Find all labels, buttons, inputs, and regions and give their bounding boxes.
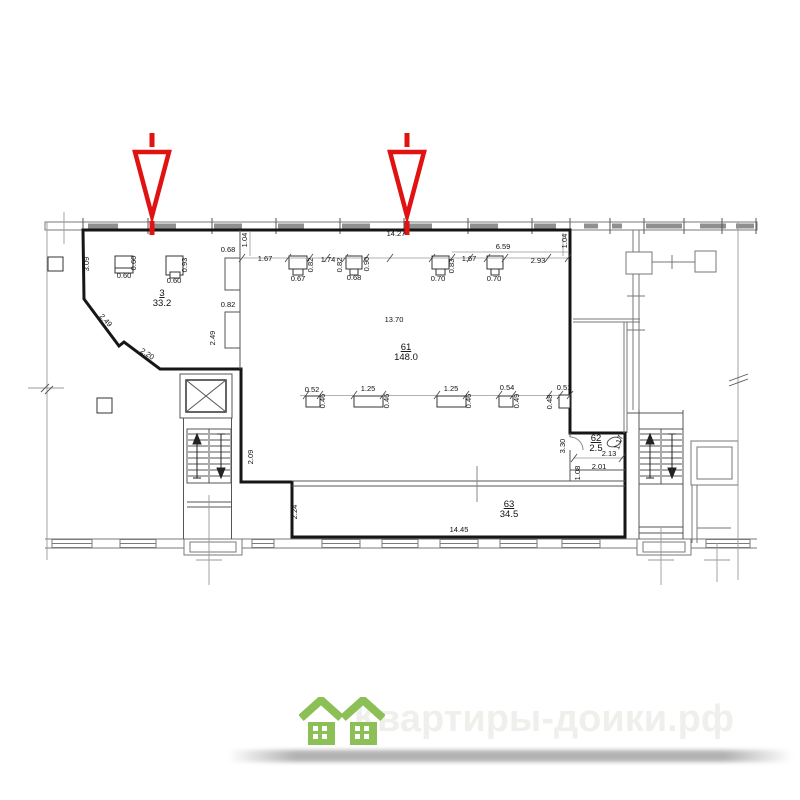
arrow-head bbox=[390, 152, 424, 216]
dimension-label: 0.49 bbox=[512, 394, 521, 409]
dimension-label: 1.74 bbox=[321, 255, 336, 264]
dimension-label: 2.24 bbox=[290, 505, 299, 520]
house-2 bbox=[343, 700, 383, 745]
dimension-label: 0.60 bbox=[167, 276, 182, 285]
dimension-label: 0.46 bbox=[464, 394, 473, 409]
dimension-label: 0.67 bbox=[291, 274, 306, 283]
dimension-label: 1.67 bbox=[258, 254, 273, 263]
dimension-label: 0.83 bbox=[447, 259, 456, 274]
dimension-label: 3.30 bbox=[558, 439, 567, 454]
house-1 bbox=[301, 700, 341, 745]
dimension-label: 1.04 bbox=[240, 233, 249, 248]
dimension-label: 0.82 bbox=[221, 300, 236, 309]
dimension-label: 13.70 bbox=[385, 315, 404, 324]
dimension-labels: 3.090.600.600.930.602.492.200.680.822.49… bbox=[82, 229, 625, 534]
dimension-label: 6.59 bbox=[496, 242, 511, 251]
elevator bbox=[180, 374, 232, 539]
dimension-label: 0.68 bbox=[347, 273, 362, 282]
door-swing-arc bbox=[570, 437, 583, 450]
dimension-label: 1.67 bbox=[462, 254, 477, 263]
adjacent-structures bbox=[573, 230, 738, 543]
dimension-label: 0.48 bbox=[545, 395, 554, 410]
dimension-label: 2.09 bbox=[246, 450, 255, 465]
watermark-banner: Квартиры-до ики.рф bbox=[298, 693, 790, 746]
dimension-label: 2.13 bbox=[602, 449, 617, 458]
dimension-label: 2.49 bbox=[208, 331, 217, 346]
dimension-label: 0.70 bbox=[431, 274, 446, 283]
room-area: 34.5 bbox=[500, 509, 519, 520]
dimension-label: 0.51 bbox=[557, 383, 572, 392]
dimension-label: 0.52 bbox=[305, 385, 320, 394]
arrow-head bbox=[135, 152, 169, 216]
dimension-label: 2.01 bbox=[592, 462, 607, 471]
bottom-exterior-wall bbox=[45, 539, 757, 555]
dimension-label: 0.54 bbox=[500, 383, 515, 392]
dimension-label: 0.46 bbox=[318, 394, 327, 409]
dimension-label: 2.93 bbox=[531, 256, 546, 265]
room-area: 2.5 bbox=[589, 443, 602, 454]
dimension-label: 0.68 bbox=[221, 245, 236, 254]
dimension-label: 0.60 bbox=[129, 256, 138, 271]
partitions bbox=[225, 230, 625, 502]
room-area: 33.2 bbox=[153, 298, 172, 309]
dimension-label: 1.08 bbox=[573, 466, 582, 481]
dimension-label: 0.82 bbox=[335, 258, 344, 273]
watermark-text-left: Квартиры-до bbox=[354, 698, 602, 741]
dimension-label: 0.93 bbox=[180, 258, 189, 273]
dimension-label: 14.27 bbox=[387, 229, 406, 238]
dimension-label: 1.25 bbox=[444, 384, 459, 393]
dimension-label: 3.09 bbox=[82, 257, 91, 272]
axis-break-right bbox=[729, 374, 748, 386]
room-area: 148.0 bbox=[394, 352, 418, 363]
dimension-label: 0.60 bbox=[117, 271, 132, 280]
watermark-reflection bbox=[228, 750, 792, 762]
dimension-label: 2.49 bbox=[98, 312, 115, 329]
dimension-label: 0.46 bbox=[382, 394, 391, 409]
dimension-label: 1.04 bbox=[560, 234, 569, 249]
dimension-label: 0.70 bbox=[487, 274, 502, 283]
floor-plan-drawing: 3.090.600.600.930.602.492.200.680.822.49… bbox=[0, 0, 800, 800]
dimension-label: 0.82 bbox=[306, 258, 315, 273]
floor-plan-page: 3.090.600.600.930.602.492.200.680.822.49… bbox=[0, 0, 800, 800]
stairs-right bbox=[627, 410, 683, 539]
dimension-label: 1.25 bbox=[361, 384, 376, 393]
green-houses-icon bbox=[299, 697, 385, 747]
dimension-label: 14.45 bbox=[450, 525, 469, 534]
dimension-label: 0.90 bbox=[362, 257, 371, 272]
watermark-text-right: ики.рф bbox=[601, 698, 734, 741]
stairs-left bbox=[187, 429, 232, 507]
